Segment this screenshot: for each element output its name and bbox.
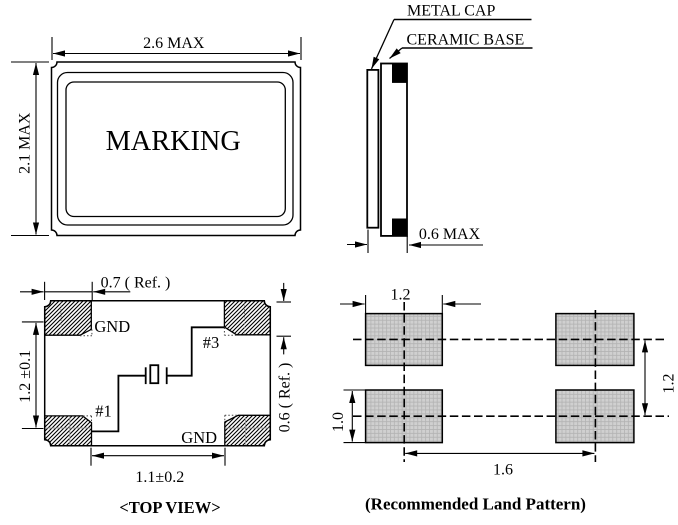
svg-text:#1: #1 — [95, 401, 112, 420]
svg-text:CERAMIC BASE: CERAMIC BASE — [407, 32, 525, 49]
svg-text:MARKING: MARKING — [106, 126, 241, 157]
svg-text:2.6 MAX: 2.6 MAX — [143, 35, 205, 52]
svg-text:1.2: 1.2 — [661, 374, 678, 394]
svg-text:1.2: 1.2 — [391, 287, 411, 304]
svg-text:METAL CAP: METAL CAP — [407, 3, 495, 20]
svg-text:0.6 ( Ref. ): 0.6 ( Ref. ) — [277, 363, 294, 433]
svg-text:<TOP VIEW>: <TOP VIEW> — [119, 498, 220, 517]
svg-text:GND: GND — [181, 428, 217, 447]
svg-text:1.6: 1.6 — [493, 462, 513, 479]
svg-text:1.1±0.2: 1.1±0.2 — [135, 469, 184, 486]
svg-text:0.6 MAX: 0.6 MAX — [419, 226, 481, 243]
svg-text:#3: #3 — [203, 333, 220, 352]
svg-text:0.7 ( Ref. ): 0.7 ( Ref. ) — [101, 275, 171, 292]
svg-text:2.1 MAX: 2.1 MAX — [17, 112, 34, 174]
svg-text:(Recommended Land Pattern): (Recommended Land Pattern) — [365, 495, 586, 514]
svg-text:1.2 ±0.1: 1.2 ±0.1 — [17, 350, 34, 403]
svg-text:1.0: 1.0 — [330, 412, 347, 432]
svg-text:GND: GND — [94, 317, 130, 336]
